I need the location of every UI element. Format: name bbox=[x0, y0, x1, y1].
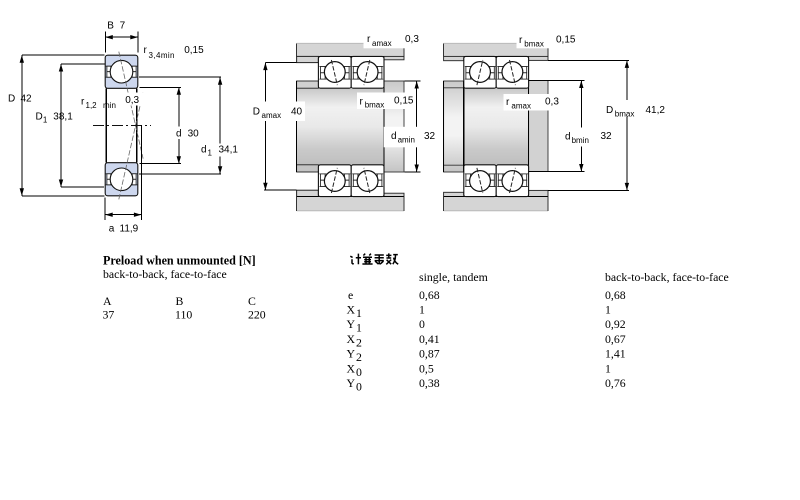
svg-text:0: 0 bbox=[419, 317, 425, 331]
svg-text:X: X bbox=[347, 361, 356, 375]
svg-text:0,92: 0,92 bbox=[605, 317, 626, 331]
svg-text:r: r bbox=[81, 97, 85, 108]
svg-text:37: 37 bbox=[103, 307, 115, 321]
svg-text:40: 40 bbox=[291, 107, 303, 118]
svg-text:0,15: 0,15 bbox=[394, 95, 414, 106]
svg-text:41,2: 41,2 bbox=[646, 105, 666, 116]
svg-text:0,68: 0,68 bbox=[605, 288, 626, 302]
svg-text:A: A bbox=[103, 294, 112, 308]
svg-text:0,15: 0,15 bbox=[184, 45, 204, 56]
svg-text:1: 1 bbox=[356, 321, 362, 335]
svg-text:32: 32 bbox=[601, 131, 613, 142]
svg-text:0,38: 0,38 bbox=[419, 376, 440, 390]
svg-text:D: D bbox=[8, 93, 15, 104]
svg-text:B: B bbox=[176, 294, 184, 308]
svg-text:amax: amax bbox=[262, 111, 282, 120]
svg-text:C: C bbox=[248, 294, 256, 308]
svg-text:7: 7 bbox=[120, 20, 126, 31]
svg-text:back-to-back, face-to-face: back-to-back, face-to-face bbox=[103, 267, 227, 281]
svg-text:0: 0 bbox=[356, 380, 362, 394]
svg-text:amax: amax bbox=[511, 101, 531, 110]
svg-text:0,3: 0,3 bbox=[545, 97, 559, 108]
svg-text:X: X bbox=[347, 332, 356, 346]
svg-text:bmax: bmax bbox=[524, 39, 544, 48]
svg-text:30: 30 bbox=[188, 129, 200, 140]
svg-text:bmax: bmax bbox=[365, 101, 385, 110]
svg-text:2: 2 bbox=[356, 335, 362, 349]
svg-text:r: r bbox=[144, 45, 148, 56]
svg-text:bmax: bmax bbox=[615, 109, 635, 118]
svg-text:d: d bbox=[201, 145, 207, 156]
svg-text:1,41: 1,41 bbox=[605, 347, 626, 361]
svg-text:d: d bbox=[565, 131, 571, 142]
svg-text:0,68: 0,68 bbox=[419, 288, 440, 302]
svg-text:1,2: 1,2 bbox=[86, 101, 98, 110]
svg-text:1: 1 bbox=[43, 116, 48, 125]
svg-text:0,67: 0,67 bbox=[605, 332, 626, 346]
svg-text:0,3: 0,3 bbox=[125, 95, 139, 106]
svg-text:d: d bbox=[391, 131, 397, 142]
svg-text:D: D bbox=[606, 105, 613, 116]
svg-text:single, tandem: single, tandem bbox=[419, 270, 488, 284]
svg-text:38,1: 38,1 bbox=[53, 112, 73, 123]
svg-text:Y: Y bbox=[347, 376, 356, 390]
svg-text:1: 1 bbox=[605, 361, 611, 375]
svg-text:Y: Y bbox=[347, 347, 356, 361]
svg-text:back-to-back, face-to-face: back-to-back, face-to-face bbox=[605, 270, 729, 284]
svg-text:42: 42 bbox=[21, 93, 33, 104]
svg-text:1: 1 bbox=[356, 306, 362, 320]
svg-text:min: min bbox=[103, 101, 116, 110]
svg-text:Preload when unmounted [N]: Preload when unmounted [N] bbox=[103, 254, 256, 268]
svg-text:e: e bbox=[348, 288, 353, 302]
svg-text:0,5: 0,5 bbox=[419, 361, 434, 375]
svg-text:amax: amax bbox=[372, 39, 392, 48]
svg-text:D: D bbox=[253, 107, 260, 118]
svg-text:1: 1 bbox=[605, 303, 611, 317]
svg-text:32: 32 bbox=[424, 131, 436, 142]
svg-text:B: B bbox=[107, 20, 114, 31]
svg-text:2: 2 bbox=[356, 350, 362, 364]
svg-text:0,15: 0,15 bbox=[556, 35, 576, 46]
svg-text:D: D bbox=[36, 112, 43, 123]
svg-text:3,4min: 3,4min bbox=[149, 51, 175, 60]
svg-text:0,76: 0,76 bbox=[605, 376, 626, 390]
svg-text:11,9: 11,9 bbox=[120, 224, 139, 235]
svg-text:0,87: 0,87 bbox=[419, 347, 440, 361]
svg-text:bmin: bmin bbox=[572, 136, 589, 145]
svg-text:0,41: 0,41 bbox=[419, 332, 440, 346]
svg-text:a: a bbox=[109, 224, 115, 235]
svg-text:110: 110 bbox=[175, 307, 192, 321]
svg-text:Y: Y bbox=[347, 317, 356, 331]
svg-text:amin: amin bbox=[398, 136, 415, 145]
svg-text:X: X bbox=[347, 303, 356, 317]
svg-text:220: 220 bbox=[248, 307, 266, 321]
svg-text:1: 1 bbox=[419, 303, 425, 317]
svg-text:d: d bbox=[176, 129, 182, 140]
svg-text:1: 1 bbox=[208, 149, 213, 158]
svg-text:0: 0 bbox=[356, 365, 362, 379]
svg-text:0,3: 0,3 bbox=[405, 34, 419, 45]
svg-text:34,1: 34,1 bbox=[219, 145, 239, 156]
